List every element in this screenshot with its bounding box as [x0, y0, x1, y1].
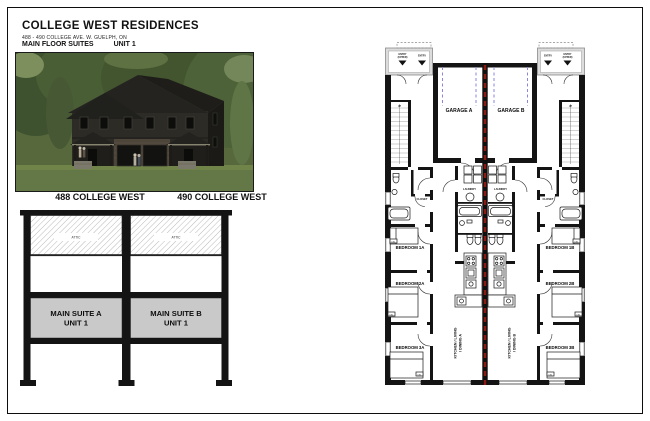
stairs-left: [74, 161, 92, 169]
sheet-subtitle: MAIN FLOOR SUITES UNIT 1: [22, 41, 136, 48]
svg-text:/ DINING A: / DINING A: [459, 334, 463, 352]
entry-left-label: ENTRY: [418, 55, 426, 58]
floor-plan-drawing: ENTRY (UPPER) ENTRY ENTRY ENTRY (UPPER) …: [385, 42, 585, 385]
attic-b-label: ATTIC: [172, 236, 182, 240]
building-cross-section: ATTIC ATTIC MAIN SUITE A UNIT 1 MAIN SUI…: [20, 210, 232, 387]
drawing-sheet: COLLEGE WEST RESIDENCES 488 - 490 COLLEG…: [0, 0, 650, 421]
page-title: COLLEGE WEST RESIDENCES: [22, 20, 199, 32]
attic-a-label: ATTIC: [72, 236, 82, 240]
garage-door-left: [117, 145, 141, 166]
unit-b-walls: [485, 43, 585, 386]
rendering-scene: [16, 53, 253, 191]
laundry-a-label: LAUNDRY: [463, 187, 476, 191]
laundry-b-label: LAUNDRY: [494, 187, 507, 191]
party-wall-line: [482, 63, 487, 385]
stairs-up-right-label: UP: [569, 105, 573, 108]
garage-b-label: GARAGE B: [498, 108, 525, 114]
kitchen-b-label: KITCHEN / LIVING / DINING B: [508, 327, 517, 358]
suite-a-unit: UNIT 1: [64, 319, 89, 328]
main-floor-slab: [24, 338, 229, 344]
bedroom-3a-label: BEDROOM 3A: [396, 345, 425, 350]
stairs-up-left-label: UP: [398, 105, 402, 108]
lawn: [16, 165, 253, 191]
bedroom-3b-label: BEDROOM 3B: [546, 345, 575, 350]
bedroom-1a-label: BEDROOM 1A: [396, 245, 425, 250]
suite-b-name: MAIN SUITE B: [150, 309, 202, 318]
entry-upper-right-label2: (UPPER): [563, 56, 573, 59]
suite-b-unit: UNIT 1: [164, 319, 189, 328]
unit-label: UNIT 1: [114, 41, 136, 48]
stairs-right: [178, 161, 196, 169]
cross-section-drawing: ATTIC ATTIC MAIN SUITE A UNIT 1 MAIN SUI…: [20, 210, 232, 387]
garage-a-label: GARAGE A: [446, 108, 473, 114]
main-floor-plan: ENTRY (UPPER) ENTRY ENTRY ENTRY (UPPER) …: [385, 42, 585, 385]
suite-a-name: MAIN SUITE A: [50, 309, 102, 318]
unit-a-walls: [385, 43, 485, 386]
entry-upper-left-label2: (UPPER): [398, 56, 408, 59]
building-rendering: [15, 52, 254, 192]
bedroom-2a-label: BEDROOM 2A: [396, 281, 425, 286]
foundation-feet: [20, 380, 232, 386]
svg-text:KITCHEN / LIVING: KITCHEN / LIVING: [454, 327, 458, 358]
address-label-490: 490 COLLEGE WEST: [170, 192, 274, 202]
kitchen-a-label: KITCHEN / LIVING / DINING A: [454, 327, 463, 358]
svg-text:KITCHEN / LIVING: KITCHEN / LIVING: [508, 327, 512, 358]
garage-door-right: [143, 145, 167, 166]
second-floor-slab: [24, 292, 229, 298]
bedroom-2b-label: BEDROOM 2B: [546, 281, 575, 286]
closet-a-label: CLOSET: [417, 197, 428, 201]
address-label-488: 488 COLLEGE WEST: [52, 192, 148, 202]
bedroom-1b-label: BEDROOM 1B: [546, 245, 575, 250]
floor-label: MAIN FLOOR SUITES: [22, 41, 94, 48]
roof-slab: [20, 210, 232, 216]
closet-b-label: CLOSET: [543, 197, 554, 201]
entry-right-label: ENTRY: [544, 55, 552, 58]
svg-text:/ DINING B: / DINING B: [513, 334, 517, 353]
